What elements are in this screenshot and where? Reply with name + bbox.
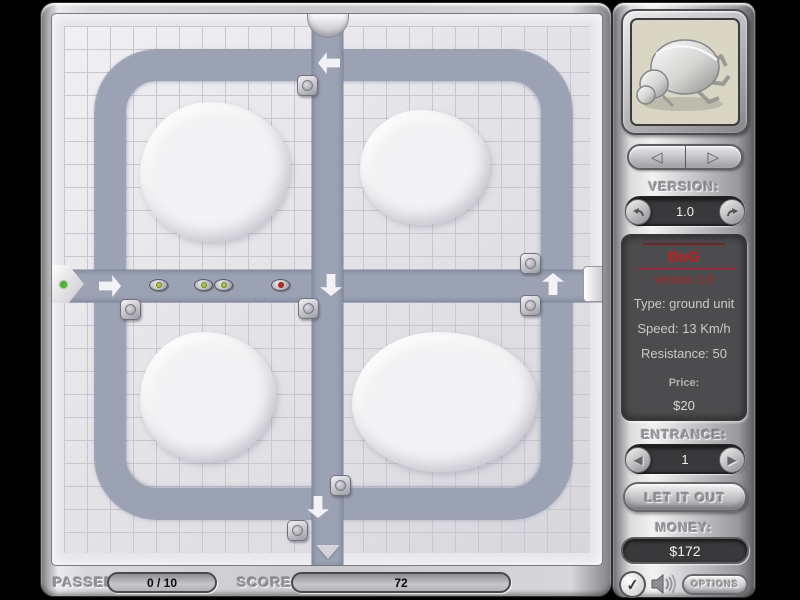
score-display: 72 bbox=[291, 572, 511, 593]
turret-core bbox=[303, 303, 314, 314]
control-sidebar: ◁ ▷ VERSION: 1.0 BuG version 1.0 Type: g… bbox=[612, 2, 756, 598]
left-filled-triangle-icon: ◀ bbox=[633, 453, 642, 467]
speaker-icon bbox=[650, 572, 678, 596]
version-value: 1.0 bbox=[676, 204, 694, 219]
entrance-value: 1 bbox=[681, 452, 688, 467]
next-unit-button[interactable]: ▷ bbox=[686, 146, 742, 168]
unit-type: Type: ground unit bbox=[623, 296, 745, 311]
let-it-out-button[interactable]: LET IT OUT bbox=[623, 482, 747, 512]
options-label: OPTIONS bbox=[691, 579, 739, 589]
turret[interactable] bbox=[298, 298, 319, 319]
confirm-toggle[interactable]: ✓ bbox=[618, 569, 648, 599]
turret-core bbox=[125, 304, 136, 315]
bug-status-dot bbox=[221, 282, 227, 288]
version-prev-button[interactable] bbox=[625, 199, 651, 225]
entrance-indicator-dot bbox=[60, 281, 67, 288]
score-label: SCORE bbox=[237, 574, 292, 590]
entrance-prev-button[interactable]: ◀ bbox=[625, 447, 651, 473]
undo-curved-arrow-icon bbox=[632, 207, 645, 218]
version-selector: 1.0 bbox=[625, 196, 745, 226]
turret-core bbox=[302, 80, 313, 91]
score-value: 72 bbox=[394, 576, 407, 590]
right-filled-triangle-icon: ▶ bbox=[727, 453, 736, 467]
turret-core bbox=[525, 300, 536, 311]
bug-unit bbox=[214, 279, 233, 291]
version-next-button[interactable] bbox=[719, 199, 745, 225]
prev-unit-button[interactable]: ◁ bbox=[629, 146, 685, 168]
unit-preview-image bbox=[630, 18, 740, 126]
money-value: $172 bbox=[669, 543, 700, 559]
right-exit-gate bbox=[583, 266, 603, 302]
redo-curved-arrow-icon bbox=[726, 207, 739, 218]
right-outline-triangle-icon: ▷ bbox=[707, 148, 719, 166]
unit-preview-frame bbox=[621, 9, 749, 135]
game-board[interactable] bbox=[51, 13, 603, 566]
money-display: $172 bbox=[621, 537, 749, 564]
price-value: $20 bbox=[623, 398, 745, 413]
bug-status-dot bbox=[156, 282, 162, 288]
left-outline-triangle-icon: ◁ bbox=[651, 148, 663, 166]
fine-print-line bbox=[643, 243, 726, 245]
unit-speed: Speed: 13 Km/h bbox=[623, 321, 745, 336]
bug-status-dot bbox=[278, 282, 284, 288]
turret[interactable] bbox=[520, 295, 541, 316]
turret[interactable] bbox=[330, 475, 351, 496]
bug-unit bbox=[149, 279, 168, 291]
beetle-illustration bbox=[633, 22, 737, 122]
money-label: MONEY: bbox=[613, 520, 755, 535]
price-label: Price: bbox=[623, 377, 745, 389]
bottom-exit-arrow-icon bbox=[316, 545, 340, 559]
turret-core bbox=[335, 480, 346, 491]
options-button[interactable]: OPTIONS bbox=[682, 574, 748, 595]
turret-core bbox=[292, 525, 303, 536]
entrance-next-button[interactable]: ▶ bbox=[719, 447, 745, 473]
let-it-out-label: LET IT OUT bbox=[645, 490, 726, 505]
unit-name: BuG bbox=[623, 248, 745, 265]
sound-button[interactable] bbox=[650, 572, 678, 596]
status-bar: PASSED 0 / 10 SCORE 72 bbox=[41, 568, 613, 598]
bug-status-dot bbox=[201, 282, 207, 288]
passed-value: 0 / 10 bbox=[147, 576, 177, 590]
unit-info-panel: BuG version 1.0 Type: ground unit Speed:… bbox=[621, 234, 747, 421]
turret[interactable] bbox=[297, 75, 318, 96]
turret[interactable] bbox=[520, 253, 541, 274]
red-divider bbox=[633, 268, 735, 269]
entrance-selector: ◀ 1 ▶ bbox=[625, 444, 745, 474]
bug-unit bbox=[194, 279, 213, 291]
entrance-label: ENTRANCE: bbox=[613, 427, 755, 442]
bug-unit bbox=[271, 279, 290, 291]
sidebar-bottom-row: ✓ OPTIONS bbox=[619, 570, 751, 598]
version-label: VERSION: bbox=[613, 179, 755, 194]
passed-display: 0 / 10 bbox=[107, 572, 217, 593]
game-window-frame: PASSED 0 / 10 SCORE 72 bbox=[40, 2, 612, 597]
unit-navigation: ◁ ▷ bbox=[627, 144, 743, 170]
turret[interactable] bbox=[287, 520, 308, 541]
checkmark-icon: ✓ bbox=[625, 574, 639, 593]
turret-core bbox=[525, 258, 536, 269]
unit-resistance: Resistance: 50 bbox=[623, 346, 745, 361]
unit-version: version 1.0 bbox=[623, 272, 745, 286]
turret[interactable] bbox=[120, 299, 141, 320]
